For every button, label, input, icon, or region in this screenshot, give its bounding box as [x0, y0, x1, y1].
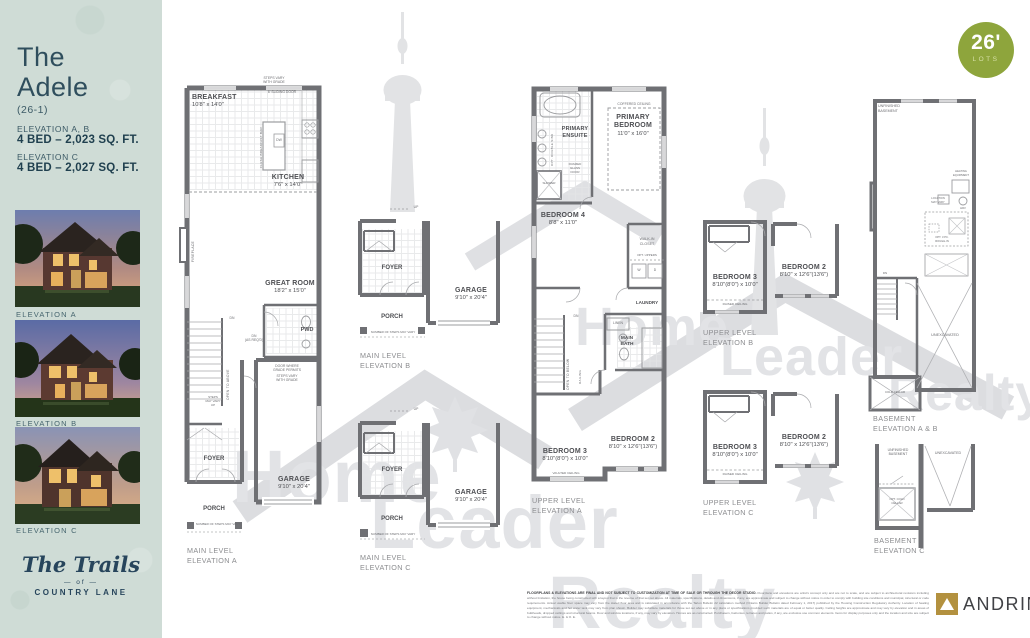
room-label-garage: GARAGE9'10" x 20'4" — [272, 476, 316, 491]
floorplan-main-level-b: UP FOYER GARAGE9'10" x 20'4" PORCH NUMBE… — [352, 203, 504, 368]
plan-caption-upper-b: UPPER LEVEL ELEVATION B — [703, 328, 757, 349]
room-label-garage: GARAGE9'10" x 20'4" — [448, 287, 494, 302]
community-logo-script: The Trails — [0, 552, 162, 577]
room-label-porch: PORCH — [372, 516, 412, 522]
note-opt-cold-cellar: OPT. COLD CELLAR — [883, 498, 911, 506]
room-label-unexcavated: UNEXCAVATED — [925, 451, 971, 456]
note-opt-rough-in: OPT. 3 PC. ROUGH-IN — [927, 236, 957, 243]
elevation-a-caption: ELEVATION A — [16, 310, 77, 319]
room-label-unfinished-basement: UNFINISHED BASEMENT — [881, 448, 915, 457]
community-logo: The Trails — of — COUNTRY LANE — [0, 552, 162, 597]
floorplan-basement-c: UNFINISHED BASEMENT UNEXCAVATED OPT. COL… — [865, 438, 1015, 556]
floorplan-main-level-a: STEPS VARY WITH GRADE 6' SLIDING DOOR BR… — [178, 76, 330, 566]
room-label-unexcavated: UNEXCAVATED — [921, 333, 969, 338]
room-label-garage: GARAGE9'10" x 20'4" — [448, 489, 494, 504]
plan-caption-basement-c: BASEMENT ELEVATION C — [874, 536, 925, 557]
room-label-foyer: FOYER — [372, 467, 412, 473]
builder-logo: ANDRIN — [936, 593, 1030, 615]
note-up: UP — [410, 205, 422, 209]
legal-disclaimer-body: Floorplans and elevations are artist's c… — [527, 591, 929, 619]
room-label-bedroom4: BEDROOM 48'8" x 11'0" — [536, 212, 590, 227]
note-sliding-door: 6' SLIDING DOOR — [262, 90, 302, 94]
community-logo-of: — of — — [0, 579, 162, 586]
room-label-main-bath: MAIN BATH — [614, 336, 640, 348]
note-dw: DW — [274, 138, 284, 142]
community-logo-name: COUNTRY LANE — [0, 588, 162, 597]
note-flush-bar: FLUSH BREAKFAST BAR — [259, 127, 263, 168]
room-label-porch: PORCH — [372, 314, 412, 320]
note-opt-uppers: OPT. UPPERS — [630, 254, 664, 258]
note-dn: DN — [879, 272, 891, 276]
spec-elevation-c-value: 4 BED – 2,027 SQ. FT. — [17, 162, 139, 174]
room-label-pwd: PWD — [296, 327, 318, 333]
note-open-to-above: OPEN TO ABOVE — [226, 369, 230, 400]
plan-caption-upper-c: UPPER LEVEL ELEVATION C — [703, 498, 757, 519]
room-label-foyer: FOYER — [372, 265, 412, 271]
note-coffered-ceiling: COFFERED CEILING — [608, 102, 660, 106]
elevation-a-photo — [15, 210, 140, 307]
room-label-walk-in-closet: WALK-IN CLOSET — [632, 237, 662, 246]
note-dn: DN — [226, 316, 238, 320]
note-raised-ceiling: RAISED CEILING — [713, 472, 757, 476]
builder-logo-name: ANDRIN — [963, 594, 1030, 615]
note-open-to-below: OPEN TO BELOW — [566, 359, 570, 390]
note-number-steps: NUMBER OF STEPS MAY VARY — [364, 331, 422, 335]
room-label-bedroom2: BEDROOM 28'10" x 12'6"(13'6") — [773, 434, 835, 449]
floorplan-upper-level-a: PRIMARY ENSUITE OPT. DOUBLE SINK SHOWER … — [520, 76, 676, 516]
note-number-steps: NUMBER OF STEPS MAY VARY — [188, 523, 248, 527]
spec-elevation-c-label: ELEVATION C — [17, 152, 79, 162]
lot-size-badge: 26' LOTS — [958, 22, 1014, 78]
flyer-page: Home Leader Realty Home Leader Realty Th… — [0, 0, 1030, 638]
room-label-linen: LINEN — [607, 321, 629, 325]
plan-caption-upper-a: UPPER LEVEL ELEVATION A — [532, 496, 586, 517]
room-label-bedroom3: BEDROOM 38'10"(8'0") x 10'0" — [705, 444, 765, 459]
room-label-primary-bedroom: PRIMARY BEDROOM11'0" x 16'0" — [606, 114, 660, 138]
note-shower: SHOWER — [538, 182, 560, 186]
note-framed-glass-door: FRAMED GLASS DOOR — [564, 163, 586, 175]
note-vaulted-ceiling: VAULTED CEILING — [542, 471, 590, 475]
lot-number: (26-1) — [17, 104, 48, 116]
room-label-laundry: LAUNDRY — [630, 300, 664, 305]
note-raised-ceiling: RAISED CEILING — [713, 302, 757, 306]
floorplan-main-level-c: UP FOYER GARAGE9'10" x 20'4" PORCH NUMBE… — [352, 405, 504, 570]
note-number-steps: NUMBER OF STEPS MAY VARY — [364, 533, 422, 537]
plan-caption-main-a: MAIN LEVEL ELEVATION A — [187, 546, 237, 567]
note-dryer: D — [650, 268, 660, 272]
note-washer: W — [634, 268, 644, 272]
legal-disclaimer-lead: FLOORPLANS & ELEVATIONS ARE FINAL AND NO… — [527, 591, 756, 595]
room-label-foyer: FOYER — [194, 456, 234, 462]
note-location-may-vary: LOCATION MAY VARY — [925, 197, 951, 204]
plan-caption-main-b: MAIN LEVEL ELEVATION B — [360, 351, 410, 372]
floorplan-basement-ab: UNFINISHED BASEMENT HEATING EQUIPMENT HR… — [865, 88, 1015, 438]
room-label-kitchen: KITCHEN7'6" x 14'0" — [263, 174, 313, 189]
plan-caption-main-c: MAIN LEVEL ELEVATION C — [360, 553, 411, 574]
note-hrv: HRV — [957, 207, 969, 211]
room-label-bedroom3: BEDROOM 38'10"(8'0") x 10'0" — [705, 274, 765, 289]
elevation-c-caption: ELEVATION C — [16, 526, 78, 535]
room-label-porch: PORCH — [194, 506, 234, 512]
plan-caption-basement-ab: BASEMENT ELEVATION A & B — [873, 414, 938, 435]
page-title-line2: Adele — [17, 72, 89, 103]
note-railing: RAILING — [578, 370, 582, 384]
note-fireplace: FIREPLACE — [191, 241, 195, 262]
cn-tower-icon — [384, 12, 422, 212]
sidebar: The Adele (26-1) ELEVATION A, B 4 BED – … — [0, 0, 162, 638]
note-steps-vary: STEPS VARY WITH GRADE — [254, 76, 294, 85]
floorplan-upper-level-c: BEDROOM 38'10"(8'0") x 10'0" RAISED CEIL… — [695, 382, 860, 517]
room-label-breakfast: BREAKFAST10'8" x 14'0" — [192, 94, 248, 109]
elevation-c-photo — [15, 427, 140, 524]
note-opt-double-sink: OPT. DOUBLE SINK — [550, 134, 554, 166]
note-heating-equipment: HEATING EQUIPMENT — [949, 170, 973, 177]
lot-size-label: LOTS — [958, 56, 1014, 63]
builder-logo-icon — [936, 593, 958, 615]
elevation-b-photo — [15, 320, 140, 417]
note-steps-grade: STEPS VARY WITH GRADE — [266, 374, 308, 383]
room-label-primary-ensuite: PRIMARY ENSUITE — [558, 126, 592, 139]
spec-elevation-ab-label: ELEVATION A, B — [17, 124, 90, 134]
note-steps-up: STEPS MAY VARY UP — [200, 396, 226, 408]
room-label-bedroom2: BEDROOM 28'10" x 12'6"(13'6") — [604, 436, 662, 451]
note-dn-as-reqd: DN (AS REQ'D) — [242, 334, 266, 343]
lot-size-value: 26' — [958, 31, 1014, 55]
page-title-line1: The — [17, 42, 65, 73]
room-label-bedroom2: BEDROOM 28'10" x 12'6"(13'6") — [773, 264, 835, 279]
floorplan-upper-level-b: BEDROOM 38'10"(8'0") x 10'0" RAISED CEIL… — [695, 212, 860, 347]
legal-disclaimer: FLOORPLANS & ELEVATIONS ARE FINAL AND NO… — [527, 591, 929, 620]
note-door-grade: DOOR WHERE GRADE PERMITS — [266, 364, 308, 373]
room-label-great-room: GREAT ROOM18'2" x 15'0" — [263, 280, 317, 295]
room-label-bedroom3: BEDROOM 38'10"(8'0") x 10'0" — [534, 448, 596, 463]
note-up: UP — [410, 407, 422, 411]
spec-elevation-ab-value: 4 BED – 2,023 SQ. FT. — [17, 134, 139, 146]
room-label-cold-cellar: COLD CELLAR — [875, 391, 915, 395]
room-label-unfinished-basement: UNFINISHED BASEMENT — [878, 104, 912, 113]
note-dn: DN — [570, 314, 582, 318]
